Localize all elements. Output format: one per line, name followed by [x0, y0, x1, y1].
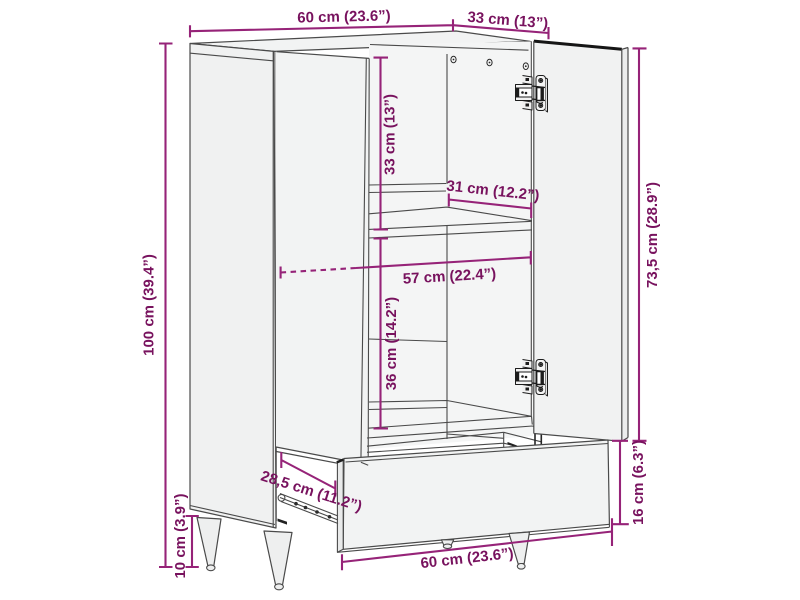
svg-text:100 cm (39.4”): 100 cm (39.4”)	[141, 254, 158, 356]
svg-text:73,5 cm (28.9”): 73,5 cm (28.9”)	[644, 182, 661, 288]
svg-text:10 cm (3.9”): 10 cm (3.9”)	[172, 493, 189, 578]
svg-text:60 cm (23.6”): 60 cm (23.6”)	[297, 7, 391, 26]
svg-text:33 cm (13”): 33 cm (13”)	[382, 94, 399, 175]
svg-text:36 cm (14.2”): 36 cm (14.2”)	[383, 297, 400, 390]
svg-text:16 cm (6.3”): 16 cm (6.3”)	[630, 440, 647, 525]
